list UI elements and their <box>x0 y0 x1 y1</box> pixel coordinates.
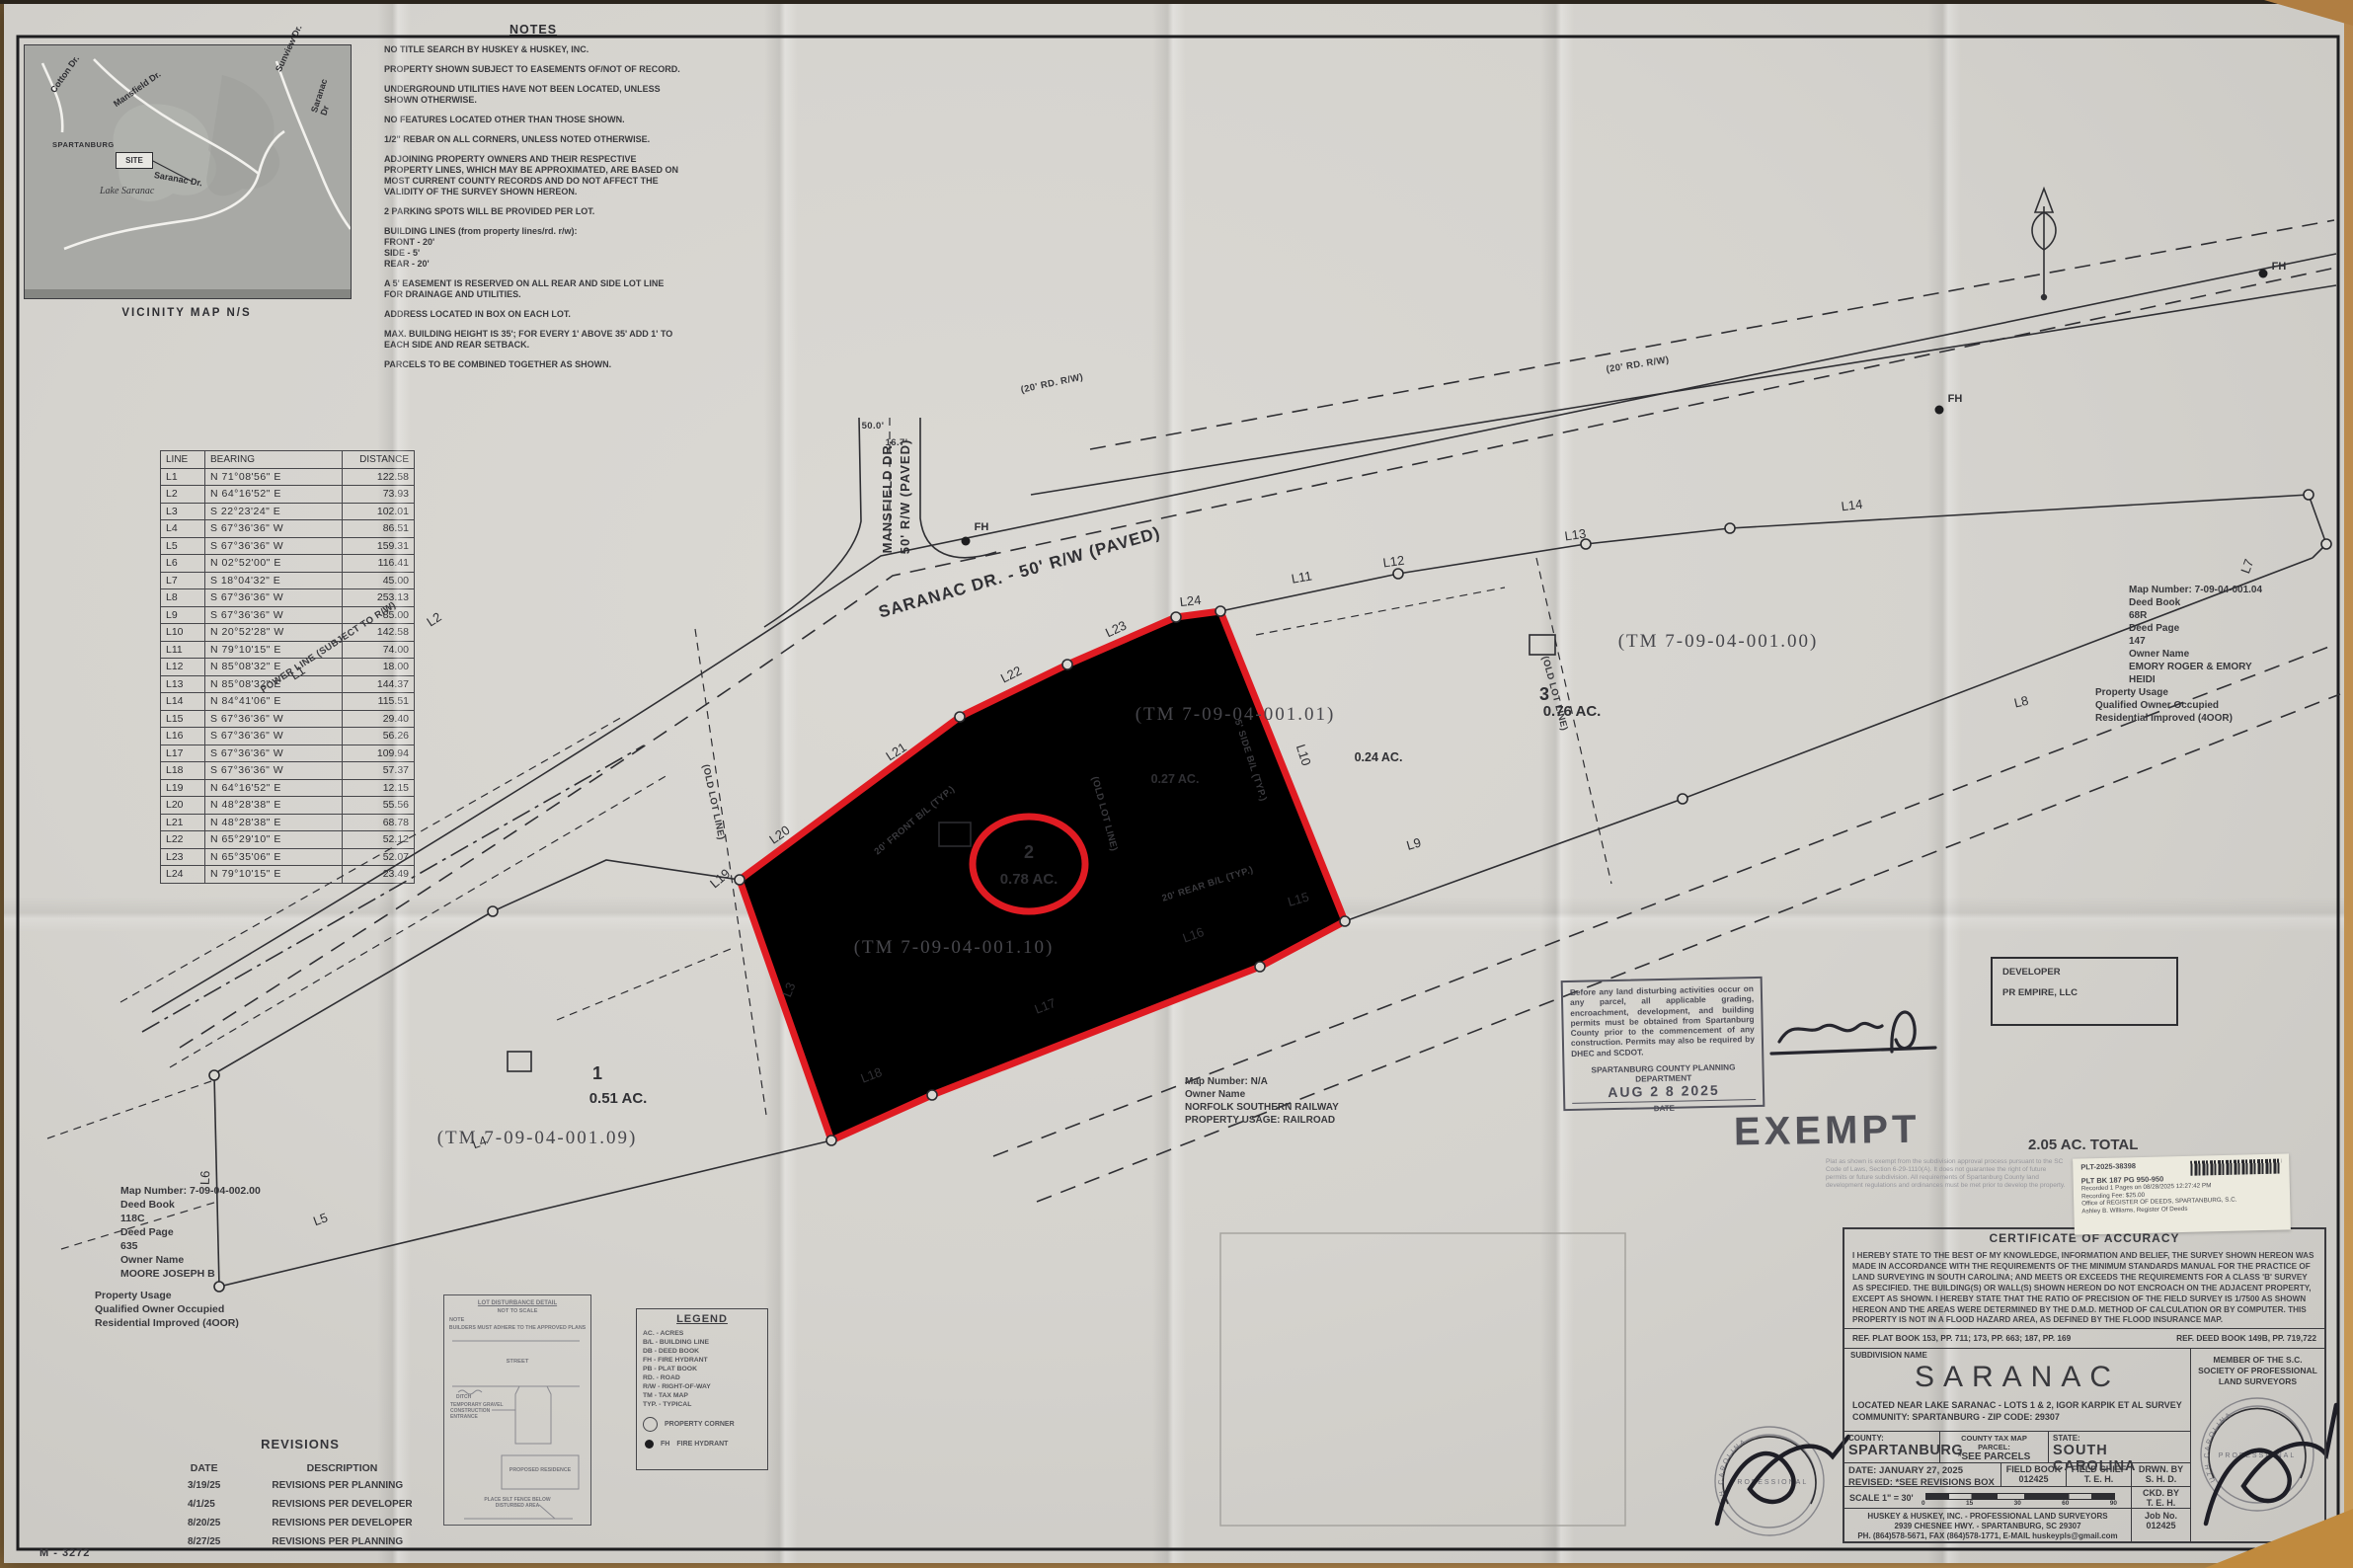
map-label: 0.51 AC. <box>589 1090 648 1107</box>
map-label: L7 <box>2237 557 2256 576</box>
map-label: L24 <box>1179 592 1202 609</box>
exempt-fine-print: Plat as shown is exempt from the subdivi… <box>1826 1158 2067 1190</box>
red-highlight-circle <box>973 817 1085 911</box>
legend-fire-hydrant: FH FIRE HYDRANT <box>643 1440 761 1449</box>
planning-department-stamp: Before any land disturbing activities oc… <box>1561 977 1765 1111</box>
map-label: L14 <box>1841 497 1863 514</box>
detail-residence-label: PROPOSED RESIDENCE <box>502 1467 579 1473</box>
scale-ticks: 015306090 <box>1922 1500 2117 1507</box>
map-label: 0.76 AC. <box>1543 703 1602 720</box>
map-label: (OLD LOT LINE) <box>700 763 727 840</box>
developer-box: DEVELOPER PR EMPIRE, LLC <box>1991 957 2178 1026</box>
revision-row: 3/19/25REVISIONS PER PLANNING <box>162 1476 438 1495</box>
map-label: MANSFIELD DR. <box>880 440 895 554</box>
detail-scale: NOT TO SCALE <box>444 1308 590 1314</box>
detail-street-label: STREET <box>444 1359 590 1365</box>
subdivision-cell: SUBDIVISION NAME SARANAC LOCATED NEAR LA… <box>1844 1348 2190 1431</box>
state-cell: STATE: SOUTH CAROLINA <box>2048 1431 2190 1462</box>
map-label: 50' R/W (PAVED) <box>898 439 912 555</box>
revision-row: 8/20/25REVISIONS PER DEVELOPER <box>162 1514 438 1532</box>
legend-items: AC. - ACRESB/L - BUILDING LINEDB - DEED … <box>643 1329 761 1409</box>
total-acreage: 2.05 AC. TOTAL <box>2028 1137 2138 1153</box>
county-cell: COUNTY: SPARTANBURG <box>1844 1431 1939 1462</box>
revisions-title: REVISIONS <box>162 1437 438 1451</box>
map-label: 1 <box>592 1063 602 1083</box>
recording-sticker: PLT-2025-38398 PLT BK 187 PG 950-950 Rec… <box>2073 1153 2291 1234</box>
map-label: 0.24 AC. <box>1355 750 1403 764</box>
fire-hydrant-icon <box>645 1440 654 1449</box>
checked-by-cell: CKD. BY T. E. H. <box>2131 1486 2190 1508</box>
reference-row: REF. PLAT BOOK 153, PP. 711; 173, PP. 66… <box>1844 1328 2324 1348</box>
detail-entrance-label: TEMPORARY GRAVEL CONSTRUCTION ENTRANCE <box>450 1402 504 1420</box>
legend-item: RD. - ROAD <box>643 1373 761 1382</box>
field-book-cell: FIELD BOOK 012425 <box>2000 1462 2066 1486</box>
lot-disturbance-detail: LOT DISTURBANCE DETAIL NOT TO SCALE NOTE… <box>443 1294 591 1526</box>
scale-bar <box>1925 1493 2115 1500</box>
legend-item: PB - PLAT BOOK <box>643 1365 761 1373</box>
ref-deed-book: REF. DEED BOOK 149B, PP. 719,722 <box>2176 1333 2316 1343</box>
detail-note: BUILDERS MUST ADHERE TO THE APPROVED PLA… <box>444 1325 590 1331</box>
map-label: (TM 7-09-04-001.00) <box>1618 631 1819 652</box>
detail-title: LOT DISTURBANCE DETAIL <box>444 1300 590 1306</box>
fire-hydrant-dots <box>962 270 2268 546</box>
map-label: SARANAC DR. - 50' R/W (PAVED) <box>877 523 1163 622</box>
north-arrow-icon <box>2032 189 2056 300</box>
firm-cell: HUSKEY & HUSKEY, INC. - PROFESSIONAL LAN… <box>1844 1508 2131 1541</box>
scanned-plat-photo: SOUTH CAROLINA PROFESSIONAL SOUTH CAROLI… <box>0 0 2353 1568</box>
legend-item: DB - DEED BOOK <box>643 1347 761 1356</box>
member-text: MEMBER OF THE S.C. SOCIETY OF PROFESSION… <box>2191 1355 2324 1387</box>
legend-item: FH - FIRE HYDRANT <box>643 1356 761 1365</box>
job-number-cell: Job No. 012425 <box>2131 1508 2190 1541</box>
map-label: 0.27 AC. <box>1151 772 1200 786</box>
scale-label: SCALE 1" = 30' <box>1849 1493 1914 1503</box>
owner-block-norfolk: Map Number: N/A Owner Name NORFOLK SOUTH… <box>1185 1075 1339 1127</box>
property-corner-icon <box>643 1417 658 1432</box>
map-label: 16.7' <box>886 437 908 448</box>
map-label: L11 <box>1291 568 1313 586</box>
map-label: L19 <box>707 866 733 891</box>
detail-note-label: NOTE <box>449 1317 464 1323</box>
map-label: L10 <box>1294 743 1314 767</box>
map-label: L13 <box>1564 526 1588 544</box>
map-label: (TM 7-09-04-001.10) <box>854 937 1055 958</box>
detail-ditch-label: DITCH <box>456 1394 471 1400</box>
stamp-date: AUG 2 8 2025 <box>1572 1081 1756 1104</box>
stamp-body: Before any land disturbing activities oc… <box>1570 983 1755 1058</box>
member-cell: MEMBER OF THE S.C. SOCIETY OF PROFESSION… <box>2190 1348 2324 1541</box>
drawn-by-cell: DRWN. BY S. H. D. <box>2131 1462 2190 1486</box>
map-label: (TM 7-09-04-001.09) <box>437 1128 638 1148</box>
subdivision-name: SARANAC <box>1844 1361 2190 1394</box>
map-label: 2 <box>1024 842 1034 862</box>
map-label: 50.0' <box>862 421 885 431</box>
owner-usage-moore: Property Usage Qualified Owner Occupied … <box>95 1289 239 1330</box>
developer-name: PR EMPIRE, LLC <box>2002 987 2166 998</box>
plat-sheet: SOUTH CAROLINA PROFESSIONAL SOUTH CAROLI… <box>4 3 2346 1563</box>
svg-text:PROFESSIONAL: PROFESSIONAL <box>1731 1479 1808 1486</box>
certificate-body: I HEREBY STATE TO THE BEST OF MY KNOWLED… <box>1852 1251 2316 1326</box>
map-label: L2 <box>424 609 443 629</box>
map-label: FH <box>2272 261 2287 273</box>
revision-row: 8/27/25REVISIONS PER PLANNING <box>162 1532 438 1551</box>
subdivision-location: LOCATED NEAR LAKE SARANAC - LOTS 1 & 2, … <box>1852 1400 2182 1410</box>
owner-block-emory: Map Number: 7-09-04-001.04 Deed Book 68R… <box>2129 584 2262 686</box>
scale-cell: SCALE 1" = 30' 015306090 <box>1844 1486 2131 1508</box>
blank-detail-box <box>1220 1233 1625 1526</box>
map-label: (TM 7-09-04-001.01) <box>1136 704 1336 725</box>
exempt-stamp: EXEMPT <box>1734 1108 1921 1155</box>
legend-item: TYP. - TYPICAL <box>643 1400 761 1409</box>
legend-item: TM - TAX MAP <box>643 1391 761 1400</box>
map-label: FH <box>1948 393 1963 405</box>
date-cell: DATE: JANUARY 27, 2025 REVISED: *SEE REV… <box>1844 1462 2000 1486</box>
revisions-table: DATEDESCRIPTION 3/19/25REVISIONS PER PLA… <box>162 1460 438 1551</box>
legend-item: AC. - ACRES <box>643 1329 761 1338</box>
detail-silt-label: PLACE SILT FENCE BELOW DISTURBED AREA <box>444 1497 590 1509</box>
map-label: L22 <box>998 663 1024 685</box>
legend-item: R/W - RIGHT-OF-WAY <box>643 1382 761 1391</box>
barcode-icon <box>2190 1159 2281 1176</box>
map-label: L12 <box>1382 553 1406 571</box>
legend-item: B/L - BUILDING LINE <box>643 1338 761 1347</box>
legend-property-corner: PROPERTY CORNER <box>643 1417 761 1432</box>
legend: LEGEND AC. - ACRESB/L - BUILDING LINEDB … <box>636 1308 768 1470</box>
tax-parcel-cell: COUNTY TAX MAP PARCEL: *SEE PARCELS <box>1939 1431 2048 1462</box>
map-label: L8 <box>2012 693 2029 711</box>
map-label: (20' RD. R/W) <box>1606 354 1670 375</box>
map-label: FH <box>975 521 989 533</box>
subdivision-label: SUBDIVISION NAME <box>1850 1351 1927 1360</box>
field-chief-cell: FIELD CHIEF T. E. H. <box>2066 1462 2131 1486</box>
ref-plat-book: REF. PLAT BOOK 153, PP. 711; 173, PP. 66… <box>1852 1333 2071 1343</box>
sheet-number: M - 3272 <box>39 1547 90 1559</box>
owner-block-moore: Map Number: 7-09-04-002.00 Deed Book 118… <box>120 1184 261 1281</box>
map-label: L5 <box>311 1210 330 1228</box>
legend-title: LEGEND <box>643 1313 761 1325</box>
map-label: POWER LINE (SUBJECT TO R/W) <box>259 599 398 695</box>
revision-row: 4/1/25REVISIONS PER DEVELOPER <box>162 1495 438 1514</box>
svg-text:SOUTH CAROLINA: SOUTH CAROLINA <box>4 3 1748 1503</box>
title-block: CERTIFICATE OF ACCURACY I HEREBY STATE T… <box>1843 1227 2326 1543</box>
map-label: 0.78 AC. <box>1000 871 1059 888</box>
power-line <box>47 716 667 1249</box>
map-label: 3 <box>1539 684 1549 704</box>
subdivision-community: COMMUNITY: SPARTANBURG - ZIP CODE: 29307 <box>1852 1412 2060 1422</box>
developer-label: DEVELOPER <box>2002 967 2166 978</box>
owner-usage-emory: Property Usage Qualified Owner Occupied … <box>2095 686 2233 725</box>
map-label: L9 <box>1405 834 1423 852</box>
map-label: (20' RD. R/W) <box>1020 371 1084 395</box>
